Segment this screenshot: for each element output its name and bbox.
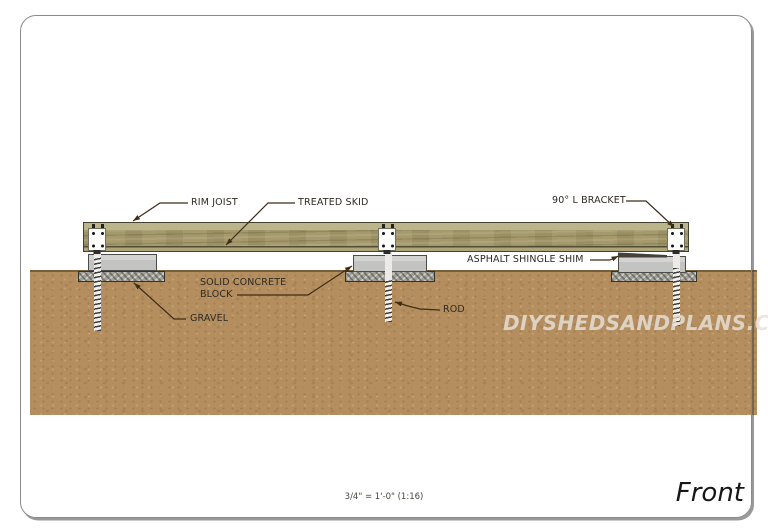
drawing-canvas: RIM JOIST TREATED SKID 90° L BRACKET ASP…	[0, 0, 768, 531]
screw-ticks	[92, 224, 95, 228]
rod-label: ROD	[443, 304, 465, 315]
scale-note: 3/4" = 1'-0" (1:16)	[0, 492, 768, 502]
gravel-bed-left	[78, 271, 165, 282]
screw-ticks	[382, 224, 385, 228]
threaded-rod-left	[94, 250, 101, 331]
bolt-dots	[382, 232, 386, 236]
treated-skid-label: TREATED SKID	[298, 197, 369, 208]
concrete-block-label: SOLID CONCRETE BLOCK	[200, 277, 296, 300]
watermark: DIYSHEDSANDPLANS.COM	[503, 311, 768, 335]
rim-joist-label: RIM JOIST	[191, 197, 238, 208]
threaded-rod-middle	[385, 250, 392, 322]
view-name-label: Front	[676, 478, 744, 508]
screw-ticks	[671, 224, 674, 228]
rod-nut	[673, 250, 680, 254]
bolt-dots	[92, 232, 96, 236]
bolt-dots	[671, 232, 675, 236]
rod-nut	[94, 250, 101, 254]
shingle-shim-label: ASPHALT SHINGLE SHIM	[467, 254, 584, 265]
gravel-label: GRAVEL	[190, 313, 228, 324]
l-bracket-middle	[378, 228, 396, 251]
rod-nut	[384, 250, 391, 254]
l-bracket-label: 90° L BRACKET	[552, 195, 626, 206]
l-bracket-left	[88, 228, 106, 251]
l-bracket-right	[667, 228, 685, 251]
